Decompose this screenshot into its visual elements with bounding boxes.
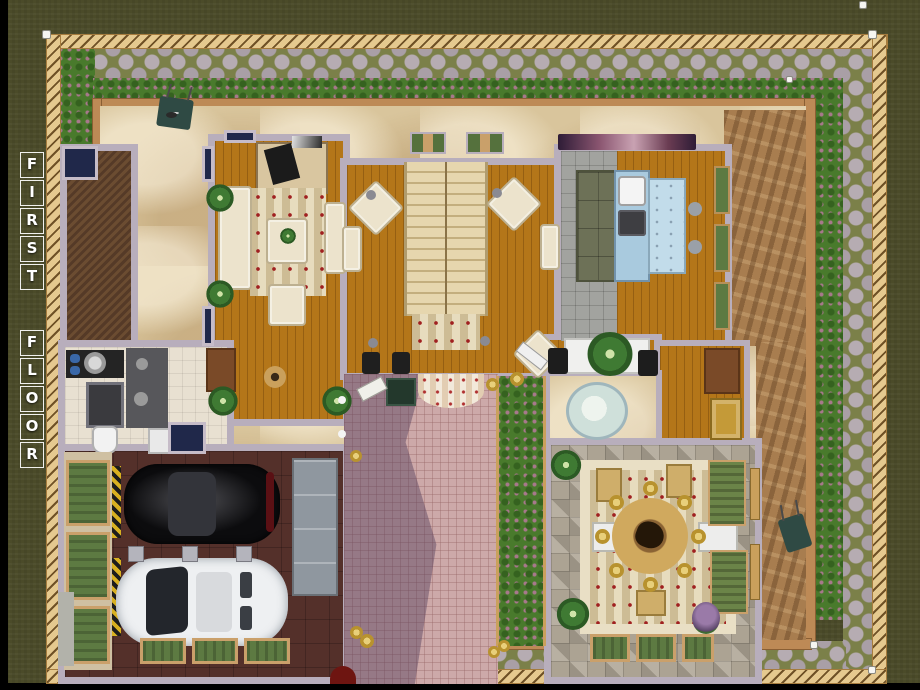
garden-lounger[interactable]: [710, 550, 748, 614]
gold-place-setting: [677, 563, 692, 578]
garage-pillar: [128, 546, 144, 562]
table-plant: [280, 228, 296, 244]
concrete-strip: [58, 592, 74, 666]
skylight-window: [62, 146, 98, 180]
floor-label-letter: T: [20, 264, 44, 290]
bathtub[interactable]: [86, 382, 124, 428]
floor-label-letter: L: [20, 358, 44, 384]
white-car-window: [240, 572, 252, 598]
gold-place-setting: [643, 577, 658, 592]
vanity-basin[interactable]: [84, 352, 106, 374]
fence-post: [859, 1, 867, 9]
floor-plan-scene: F I R S T F L O O R: [0, 0, 920, 690]
garden-planter[interactable]: [636, 634, 676, 662]
fence-post: [42, 30, 51, 39]
garage-pillar: [236, 546, 252, 562]
fountain[interactable]: [566, 382, 628, 440]
side-table[interactable]: [342, 226, 362, 272]
gold-place-setting: [595, 529, 610, 544]
gold-post: [498, 640, 510, 652]
stool[interactable]: [688, 240, 702, 254]
stair-rug[interactable]: [412, 314, 480, 350]
gold-post: [360, 634, 374, 648]
gold-framed-window: [750, 468, 760, 520]
fern-centerpiece: [586, 332, 634, 376]
dining-chair[interactable]: [636, 590, 666, 616]
window: [202, 306, 214, 346]
yellow-door[interactable]: [710, 398, 742, 440]
floor-lamp-base: [480, 336, 490, 346]
hedge-border-right: [813, 78, 843, 620]
sprinkler: [338, 430, 346, 438]
curtained-window: [410, 132, 446, 154]
black-chair[interactable]: [548, 348, 568, 374]
stove[interactable]: [618, 210, 646, 236]
wall-art[interactable]: [292, 136, 322, 148]
cobblestone-path-right: [843, 49, 872, 669]
floor-label-letter: O: [20, 386, 44, 412]
floor-lamp-base: [492, 188, 502, 198]
kitchen-sink[interactable]: [618, 176, 646, 206]
potted-palm[interactable]: [322, 386, 352, 416]
lot-fence-right: [872, 34, 887, 684]
window-planter: [714, 282, 730, 330]
floor-label-letter: O: [20, 414, 44, 440]
shower-drain: [136, 358, 148, 370]
garden-planter[interactable]: [140, 638, 186, 664]
floor-label-letter: F: [20, 152, 44, 178]
taillight: [266, 472, 274, 532]
sprinkler: [338, 396, 346, 404]
door-mat[interactable]: [418, 374, 484, 408]
hedge-border-top: [93, 78, 815, 100]
potted-fern[interactable]: [550, 450, 582, 480]
hall-side-table[interactable]: [264, 366, 286, 388]
pedestal-sink[interactable]: [148, 428, 170, 454]
garden-planter[interactable]: [244, 638, 290, 664]
dirt-yard-upper: [724, 110, 806, 346]
potted-fern[interactable]: [556, 598, 590, 630]
gold-place-setting: [691, 529, 706, 544]
window-planter: [714, 224, 730, 272]
garden-planter[interactable]: [682, 634, 714, 662]
fence-post: [868, 30, 877, 39]
potted-palm[interactable]: [206, 280, 234, 308]
gold-place-setting: [609, 495, 624, 510]
fence-post: [868, 666, 876, 674]
staircase-divider: [445, 162, 447, 316]
bird: [166, 112, 177, 118]
kitchen-island[interactable]: [648, 178, 686, 274]
gold-post: [486, 378, 499, 391]
garage-pillar: [182, 546, 198, 562]
kitchen-cabinets[interactable]: [576, 170, 618, 282]
floor-label-letter: R: [20, 208, 44, 234]
gold-place-setting: [643, 481, 658, 496]
potted-palm[interactable]: [208, 386, 238, 416]
black-car-roof: [168, 472, 216, 536]
white-car-window: [240, 606, 252, 630]
window: [224, 130, 256, 143]
window: [168, 422, 206, 454]
floor-label-letter: R: [20, 442, 44, 468]
garden-planter[interactable]: [66, 532, 110, 600]
floor-lamp-base: [366, 190, 376, 200]
floor-lamp-base: [368, 338, 378, 348]
window-planter: [714, 166, 730, 214]
white-car-roof: [196, 572, 232, 632]
white-car-windshield: [146, 566, 188, 636]
dresser[interactable]: [704, 348, 740, 394]
black-chair[interactable]: [362, 352, 380, 374]
blue-sink: [70, 354, 80, 363]
cobblestone-path-top: [61, 49, 847, 78]
awning: [558, 134, 696, 150]
planter-box[interactable]: [386, 378, 416, 406]
dirt-yard-lower: [756, 342, 806, 640]
garden-planter[interactable]: [192, 638, 238, 664]
lot-fence-top: [46, 34, 888, 49]
garden-lounger[interactable]: [708, 460, 746, 526]
blue-sink: [70, 366, 80, 375]
armchair[interactable]: [268, 284, 306, 326]
hazard-stripe: [112, 466, 121, 538]
workbench[interactable]: [292, 458, 338, 596]
black-chair[interactable]: [392, 352, 410, 374]
shower-drain: [134, 392, 148, 406]
black-chair[interactable]: [638, 350, 658, 376]
gold-post: [350, 450, 362, 462]
window: [202, 146, 214, 182]
potted-palm[interactable]: [206, 184, 234, 212]
toilet[interactable]: [92, 426, 118, 454]
curtained-window: [466, 132, 504, 154]
purple-flower-plant[interactable]: [692, 602, 720, 634]
screen-edge-left: [0, 0, 8, 690]
gold-place-setting: [609, 563, 624, 578]
garden-planter[interactable]: [66, 460, 110, 526]
side-table[interactable]: [540, 224, 560, 270]
walkway-hedge-strip: [496, 376, 546, 646]
dining-chair[interactable]: [666, 464, 692, 498]
fence-post: [810, 641, 818, 649]
stool[interactable]: [688, 202, 702, 216]
screen-edge-bottom: [0, 683, 920, 690]
garden-planter[interactable]: [590, 634, 630, 662]
gold-post: [510, 372, 524, 386]
floor-label-letter: I: [20, 180, 44, 206]
fence-post: [786, 76, 793, 83]
gold-framed-window: [750, 544, 760, 600]
floor-label-letter: F: [20, 330, 44, 356]
floor-label-letter: S: [20, 236, 44, 262]
gold-place-setting: [677, 495, 692, 510]
floor-label: F I R S T F L O O R: [20, 152, 50, 482]
